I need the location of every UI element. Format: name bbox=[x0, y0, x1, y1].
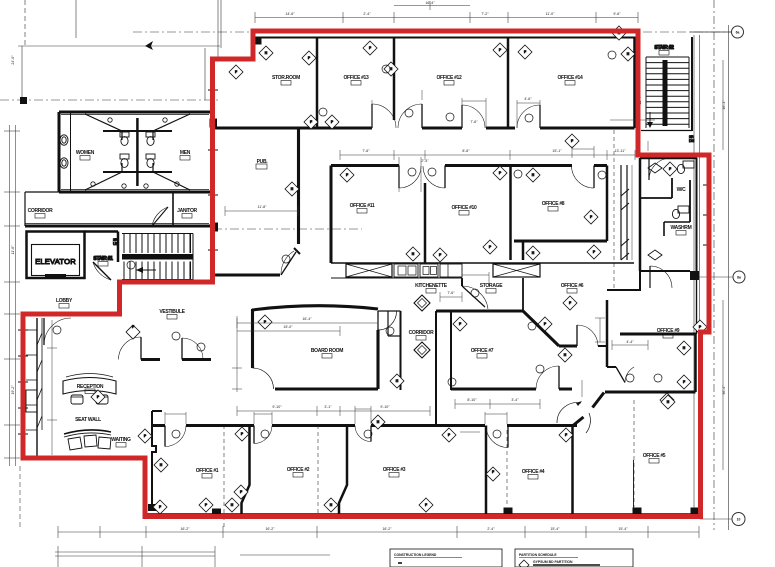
svg-text:19'-2": 19'-2" bbox=[11, 385, 15, 395]
svg-text:7'-6": 7'-6" bbox=[362, 149, 370, 153]
svg-text:GYPSUM BD PARTITION: GYPSUM BD PARTITION bbox=[533, 560, 573, 564]
svg-text:SEAT WALL: SEAT WALL bbox=[75, 417, 101, 423]
svg-text:ELEVATOR: ELEVATOR bbox=[35, 257, 76, 266]
svg-text:2'-4": 2'-4" bbox=[363, 12, 371, 16]
svg-text:7'-2": 7'-2" bbox=[481, 12, 489, 16]
svg-text:DN: DN bbox=[689, 139, 695, 143]
svg-text:OFFICE #8: OFFICE #8 bbox=[542, 201, 565, 207]
svg-text:2'-4": 2'-4" bbox=[421, 159, 429, 163]
svg-text:OFFICE #12: OFFICE #12 bbox=[436, 75, 462, 81]
svg-text:OFFICE #5: OFFICE #5 bbox=[643, 453, 666, 459]
svg-text:BOARD ROOM: BOARD ROOM bbox=[311, 348, 343, 354]
svg-text:OFFICE #11: OFFICE #11 bbox=[350, 203, 375, 209]
svg-text:9'-10": 9'-10" bbox=[272, 405, 282, 409]
svg-text:UP: UP bbox=[113, 242, 119, 246]
svg-text:CORRIDOR: CORRIDOR bbox=[409, 330, 435, 336]
svg-text:F: F bbox=[565, 433, 567, 437]
svg-text:CORRIDOR: CORRIDOR bbox=[28, 208, 54, 214]
svg-text:6a: 6a bbox=[736, 31, 740, 35]
svg-text:16'-2": 16'-2" bbox=[265, 527, 275, 531]
svg-text:F: F bbox=[439, 253, 441, 257]
svg-text:F: F bbox=[310, 120, 312, 124]
svg-text:11'-8": 11'-8" bbox=[258, 205, 268, 209]
svg-text:W/C: W/C bbox=[677, 187, 687, 193]
svg-text:F: F bbox=[590, 215, 592, 219]
svg-text:8'-10": 8'-10" bbox=[467, 398, 477, 402]
svg-text:OFFICE #9: OFFICE #9 bbox=[657, 328, 680, 334]
svg-text:16'-4": 16'-4" bbox=[302, 317, 312, 321]
svg-text:14'-6": 14'-6" bbox=[285, 12, 295, 16]
svg-text:OFFICE #6: OFFICE #6 bbox=[561, 283, 584, 289]
svg-text:4'-6": 4'-6" bbox=[524, 97, 532, 101]
svg-text:OFFICE #13: OFFICE #13 bbox=[343, 75, 369, 81]
svg-text:F: F bbox=[571, 139, 573, 143]
svg-text:OFFICE #7: OFFICE #7 bbox=[471, 348, 494, 354]
svg-text:STAIR #2: STAIR #2 bbox=[654, 45, 674, 51]
svg-text:F: F bbox=[492, 470, 494, 474]
svg-text:4'-4": 4'-4" bbox=[626, 340, 634, 344]
svg-text:F: F bbox=[235, 70, 237, 74]
svg-text:24'-0": 24'-0" bbox=[11, 55, 15, 65]
svg-text:OFFICE #3: OFFICE #3 bbox=[383, 467, 406, 473]
svg-text:JANITOR: JANITOR bbox=[177, 208, 197, 214]
svg-text:PARTITION SCHEDULE: PARTITION SCHEDULE bbox=[519, 553, 557, 557]
svg-text:F: F bbox=[425, 503, 427, 507]
svg-text:KITCHENETTE: KITCHENETTE bbox=[415, 283, 448, 289]
svg-text:F: F bbox=[524, 50, 526, 54]
svg-text:7'-6": 7'-6" bbox=[470, 120, 478, 124]
svg-text:13'-11": 13'-11" bbox=[615, 149, 627, 153]
svg-text:WOMEN: WOMEN bbox=[76, 150, 95, 156]
svg-text:F: F bbox=[669, 167, 671, 171]
svg-text:15'-4": 15'-4" bbox=[618, 527, 628, 531]
svg-text:15'-1": 15'-1" bbox=[552, 149, 562, 153]
svg-text:3'-1": 3'-1" bbox=[324, 405, 332, 409]
svg-text:OFFICE #2: OFFICE #2 bbox=[287, 467, 310, 473]
svg-text:2'-4": 2'-4" bbox=[487, 527, 495, 531]
svg-text:15'-4": 15'-4" bbox=[550, 527, 560, 531]
svg-text:8'-6": 8'-6" bbox=[462, 149, 470, 153]
svg-text:9'-10": 9'-10" bbox=[380, 405, 390, 409]
svg-text:OFFICE #10: OFFICE #10 bbox=[451, 205, 477, 211]
svg-text:F: F bbox=[346, 173, 348, 177]
svg-text:F: F bbox=[159, 505, 161, 509]
svg-text:11'-0": 11'-0" bbox=[546, 12, 556, 16]
svg-text:11'-6": 11'-6" bbox=[11, 245, 15, 255]
svg-text:OFFICE #1: OFFICE #1 bbox=[196, 468, 219, 474]
svg-text:STAIR #1: STAIR #1 bbox=[93, 256, 113, 262]
svg-text:15'-0": 15'-0" bbox=[283, 325, 293, 329]
svg-text:36'-4": 36'-4" bbox=[722, 385, 726, 395]
svg-text:8a: 8a bbox=[737, 276, 741, 280]
svg-text:WAITING: WAITING bbox=[111, 437, 131, 443]
svg-text:MEN: MEN bbox=[180, 150, 191, 156]
svg-text:16'-2": 16'-2" bbox=[382, 527, 392, 531]
svg-text:10: 10 bbox=[737, 518, 741, 522]
svg-text:STORAGE: STORAGE bbox=[480, 283, 503, 289]
svg-text:F: F bbox=[132, 325, 134, 329]
svg-text:WASHRM: WASHRM bbox=[671, 225, 692, 231]
svg-text:VESTIBULE: VESTIBULE bbox=[159, 309, 185, 315]
svg-text:9'-6": 9'-6" bbox=[613, 12, 621, 16]
svg-text:OFFICE #14: OFFICE #14 bbox=[557, 75, 583, 81]
svg-text:16'-4": 16'-4" bbox=[425, 1, 435, 5]
svg-text:F: F bbox=[240, 490, 242, 494]
svg-text:CONSTRUCTION LEGEND: CONSTRUCTION LEGEND bbox=[394, 553, 437, 557]
svg-text:STOR.ROOM: STOR.ROOM bbox=[272, 75, 300, 81]
svg-text:3'-4": 3'-4" bbox=[511, 398, 519, 402]
svg-text:F: F bbox=[683, 380, 685, 384]
svg-text:7'-6": 7'-6" bbox=[447, 291, 455, 295]
svg-text:F: F bbox=[569, 301, 571, 305]
svg-text:16'-2": 16'-2" bbox=[180, 527, 190, 531]
svg-text:LOBBY: LOBBY bbox=[56, 298, 73, 304]
svg-text:F: F bbox=[459, 322, 461, 326]
svg-text:F: F bbox=[369, 46, 371, 50]
svg-text:OFFICE #4: OFFICE #4 bbox=[522, 469, 545, 475]
svg-text:16'-1": 16'-1" bbox=[722, 100, 726, 110]
